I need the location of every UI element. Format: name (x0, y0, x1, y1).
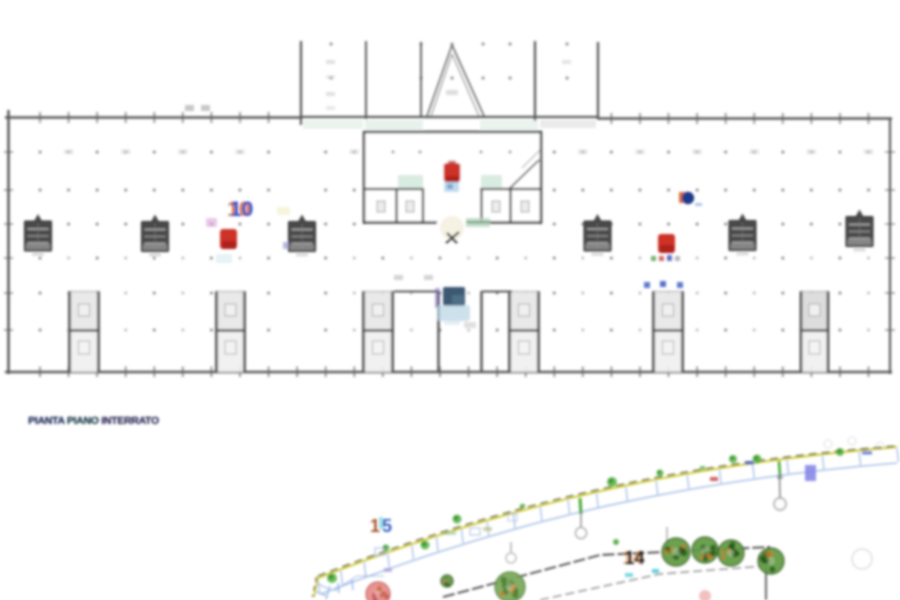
svg-text:5: 5 (382, 516, 392, 536)
svg-text:10: 10 (230, 198, 253, 221)
svg-text:14: 14 (625, 548, 645, 568)
svg-text:PIANTA PIANO INTERRATO: PIANTA PIANO INTERRATO (29, 414, 160, 426)
svg-text:1: 1 (370, 516, 380, 536)
